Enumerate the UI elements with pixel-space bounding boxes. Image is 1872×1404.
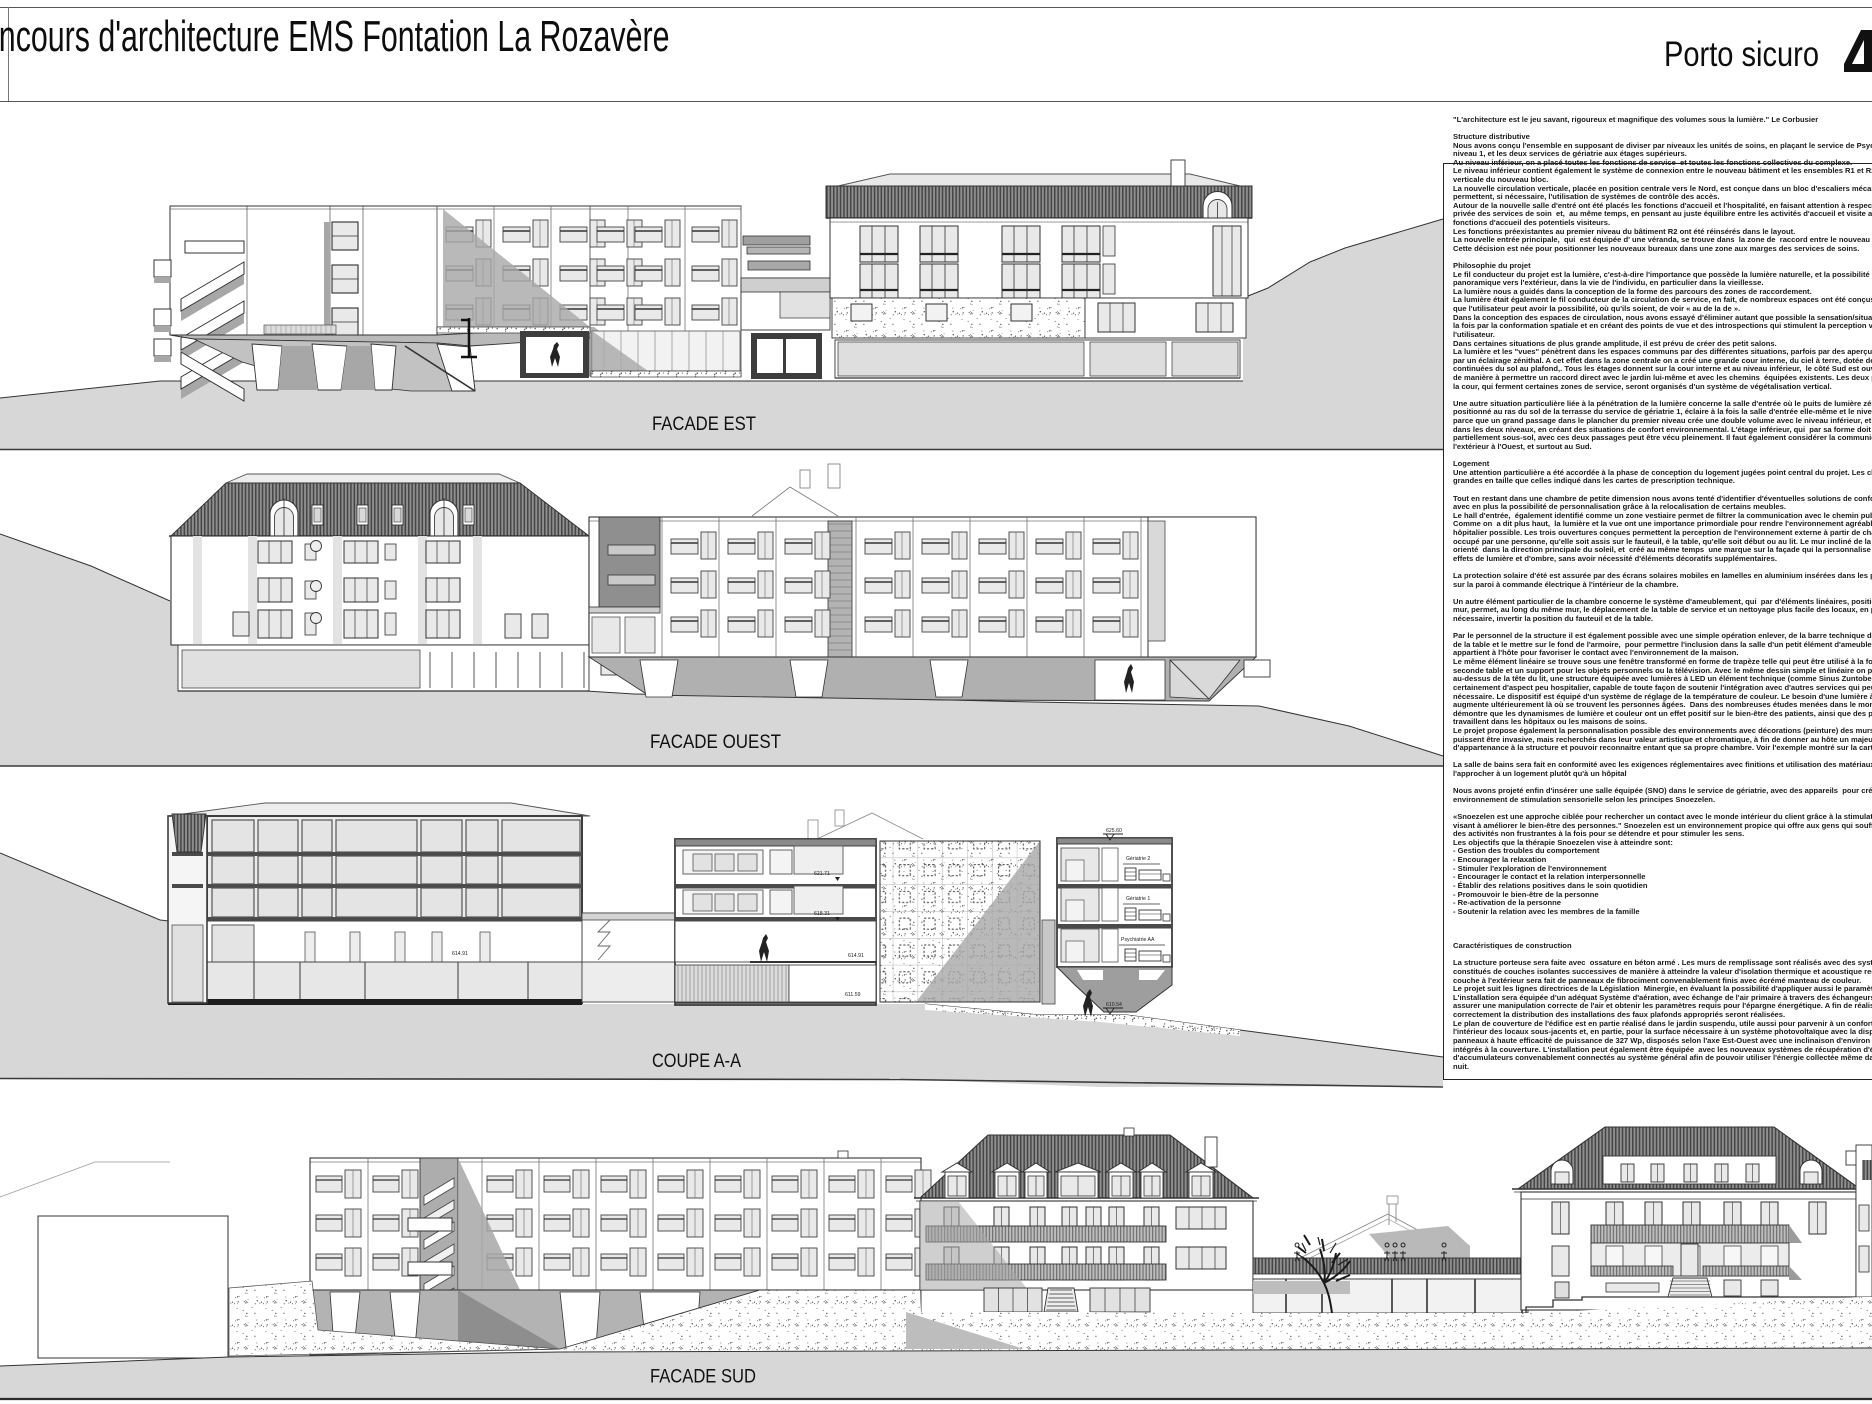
svg-text:Psychiatrie AA: Psychiatrie AA xyxy=(1121,937,1155,943)
svg-text:618.31: 618.31 xyxy=(814,911,830,917)
svg-text:FACADE SUD: FACADE SUD xyxy=(650,1366,756,1388)
svg-text:610.54: 610.54 xyxy=(1106,1002,1122,1008)
svg-text:625.60: 625.60 xyxy=(1106,828,1122,834)
svg-text:614.91: 614.91 xyxy=(848,953,864,959)
svg-text:FACADE EST: FACADE EST xyxy=(652,413,756,435)
svg-text:611.59: 611.59 xyxy=(845,992,861,998)
svg-text:621.71: 621.71 xyxy=(814,871,830,877)
svg-text:FACADE OUEST: FACADE OUEST xyxy=(650,731,781,753)
svg-text:Gériatrie 1: Gériatrie 1 xyxy=(1126,896,1150,902)
svg-text:COUPE A-A: COUPE A-A xyxy=(652,1050,741,1072)
svg-text:Gériatrie 2: Gériatrie 2 xyxy=(1126,856,1150,862)
svg-text:614.91: 614.91 xyxy=(452,951,468,957)
